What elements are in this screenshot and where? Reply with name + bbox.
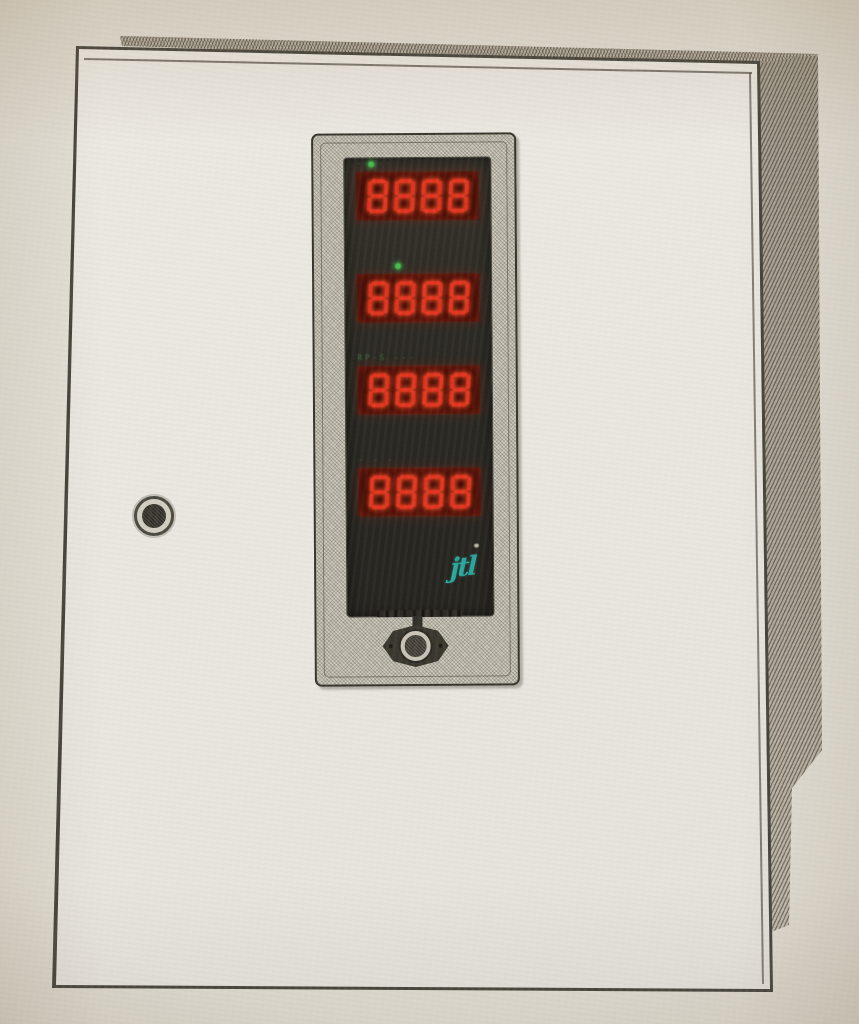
row-label-text: ·····	[356, 159, 393, 168]
segment-b	[410, 181, 415, 195]
seven-segment-digit	[447, 179, 469, 213]
segment-f	[395, 283, 400, 297]
seven-segment-digit	[449, 373, 471, 407]
segment-f	[449, 283, 454, 297]
display-row-2	[345, 259, 491, 323]
segment-f	[394, 181, 399, 195]
segment-d	[397, 311, 411, 315]
led-display-window	[357, 467, 481, 518]
segment-b	[412, 477, 417, 491]
led-display-window	[355, 171, 479, 222]
segment-d	[371, 403, 385, 407]
segment-e	[422, 391, 427, 405]
segment-b	[385, 477, 390, 491]
segment-f	[396, 477, 401, 491]
segment-d	[370, 311, 384, 315]
segment-e	[448, 299, 453, 313]
segment-f	[450, 477, 455, 491]
seven-segment-digit	[368, 475, 390, 509]
seven-segment-digit	[448, 281, 470, 315]
segment-d	[371, 505, 385, 509]
latch-icon[interactable]	[405, 635, 427, 657]
segment-g	[398, 296, 412, 300]
lock-ring	[399, 629, 433, 663]
segment-g	[372, 490, 386, 494]
screw-icon	[439, 644, 443, 648]
segment-f	[367, 181, 372, 195]
segment-a	[399, 373, 413, 377]
segment-g	[371, 388, 385, 392]
segment-b	[465, 283, 470, 297]
segment-a	[425, 179, 439, 183]
segment-g	[453, 490, 467, 494]
segment-d	[451, 311, 465, 315]
segment-b	[438, 375, 443, 389]
segment-b	[411, 283, 416, 297]
segment-e	[393, 197, 398, 211]
segment-b	[465, 375, 470, 389]
segment-d	[425, 403, 439, 407]
segment-b	[466, 477, 471, 491]
brand-logo: jtl	[449, 551, 475, 584]
display-row-3: RP-S ---	[346, 351, 492, 415]
segment-g	[370, 194, 384, 198]
display-face: jtl ·····RP-S ---- - -	[344, 157, 493, 616]
segment-e	[422, 493, 427, 507]
segment-e	[449, 493, 454, 507]
segment-d	[369, 209, 383, 213]
segment-a	[372, 373, 386, 377]
segment-b	[384, 283, 389, 297]
segment-g	[425, 296, 439, 300]
segment-f	[422, 375, 427, 389]
segment-a	[453, 373, 467, 377]
row-label: RP-S ---	[346, 351, 492, 364]
segment-e	[420, 197, 425, 211]
segment-d	[452, 505, 466, 509]
segment-a	[371, 281, 385, 285]
segment-f	[423, 477, 428, 491]
segment-b	[383, 181, 388, 195]
segment-d	[452, 403, 466, 407]
segment-e	[449, 391, 454, 405]
segment-g	[399, 490, 413, 494]
segment-b	[437, 181, 442, 195]
door-keyhole[interactable]	[134, 496, 174, 536]
segment-g	[425, 388, 439, 392]
segment-g	[426, 490, 440, 494]
segment-g	[451, 194, 465, 198]
panel-lock[interactable]	[383, 625, 449, 667]
segment-f	[368, 375, 373, 389]
seven-segment-digit	[368, 373, 390, 407]
segment-a	[425, 281, 439, 285]
segment-f	[421, 181, 426, 195]
seven-segment-digit	[422, 475, 444, 509]
segment-a	[452, 281, 466, 285]
keyhole-icon	[142, 504, 166, 528]
seven-segment-digit	[422, 373, 444, 407]
segment-a	[373, 475, 387, 479]
segment-d	[396, 209, 410, 213]
segment-a	[426, 373, 440, 377]
led-display-window	[357, 365, 481, 416]
segment-g	[424, 194, 438, 198]
segment-e	[368, 493, 373, 507]
segment-f	[395, 375, 400, 389]
segment-d	[398, 505, 412, 509]
segment-e	[447, 197, 452, 211]
segment-d	[423, 209, 437, 213]
segment-a	[427, 475, 441, 479]
segment-e	[395, 391, 400, 405]
seven-segment-digit	[449, 475, 471, 509]
segment-b	[411, 375, 416, 389]
segment-d	[398, 403, 412, 407]
reflection-speck	[474, 544, 479, 548]
segment-g	[398, 388, 412, 392]
display-bezel: jtl ·····RP-S ---- - -	[311, 132, 520, 686]
segment-a	[371, 179, 385, 183]
row-label-text: - - -	[358, 455, 395, 464]
seven-segment-digit	[367, 281, 389, 315]
seven-segment-digit	[366, 179, 388, 213]
screw-icon	[389, 644, 393, 648]
segment-b	[464, 181, 469, 195]
segment-e	[395, 493, 400, 507]
segment-b	[439, 477, 444, 491]
segment-g	[452, 296, 466, 300]
segment-e	[366, 197, 371, 211]
segment-e	[367, 299, 372, 313]
segment-a	[400, 475, 414, 479]
segment-f	[368, 283, 373, 297]
segment-b	[384, 375, 389, 389]
segment-f	[422, 283, 427, 297]
segment-e	[394, 299, 399, 313]
segment-g	[397, 194, 411, 198]
segment-e	[421, 299, 426, 313]
seven-segment-digit	[420, 179, 442, 213]
row-label: - - -	[346, 453, 492, 466]
segment-a	[454, 475, 468, 479]
led-display-window	[356, 273, 480, 324]
seven-segment-digit	[393, 179, 415, 213]
segment-d	[425, 505, 439, 509]
seven-segment-digit	[395, 475, 417, 509]
row-label	[345, 259, 491, 272]
seven-segment-digit	[421, 281, 443, 315]
green-led-icon	[395, 263, 401, 269]
seven-segment-digit	[395, 373, 417, 407]
seven-segment-digit	[394, 281, 416, 315]
segment-g	[452, 388, 466, 392]
segment-d	[450, 209, 464, 213]
segment-a	[398, 179, 412, 183]
segment-a	[452, 179, 466, 183]
row-label: ·····	[344, 157, 490, 170]
segment-d	[424, 311, 438, 315]
segment-a	[398, 281, 412, 285]
segment-b	[438, 283, 443, 297]
display-row-4: - - -	[346, 453, 492, 517]
segment-g	[371, 296, 385, 300]
segment-f	[369, 477, 374, 491]
segment-f	[449, 375, 454, 389]
display-row-1: ·····	[344, 157, 490, 221]
row-label-text: RP-S ---	[358, 353, 417, 362]
segment-e	[368, 391, 373, 405]
segment-f	[448, 181, 453, 195]
photo-background: jtl ·····RP-S ---- - -	[0, 0, 859, 1024]
